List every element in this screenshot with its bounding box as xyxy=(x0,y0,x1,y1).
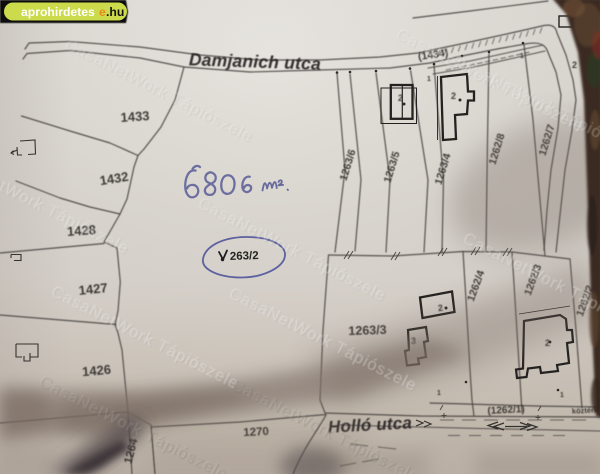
svg-text:1433: 1433 xyxy=(120,108,150,125)
svg-text:263/2: 263/2 xyxy=(230,250,259,263)
svg-text:1426: 1426 xyxy=(81,362,111,379)
svg-text:1: 1 xyxy=(437,390,441,397)
svg-text:.hu: .hu xyxy=(106,5,124,19)
svg-text:1: 1 xyxy=(427,76,431,83)
svg-text:1: 1 xyxy=(560,392,564,399)
svg-text:2: 2 xyxy=(451,91,456,101)
svg-text:2: 2 xyxy=(398,93,403,103)
svg-text:e: e xyxy=(99,5,106,19)
svg-text:1: 1 xyxy=(520,53,524,60)
svg-text:aprohirdetes: aprohirdetes xyxy=(21,5,95,19)
svg-text:(1262/1): (1262/1) xyxy=(487,404,525,417)
svg-text:2: 2 xyxy=(572,60,577,70)
